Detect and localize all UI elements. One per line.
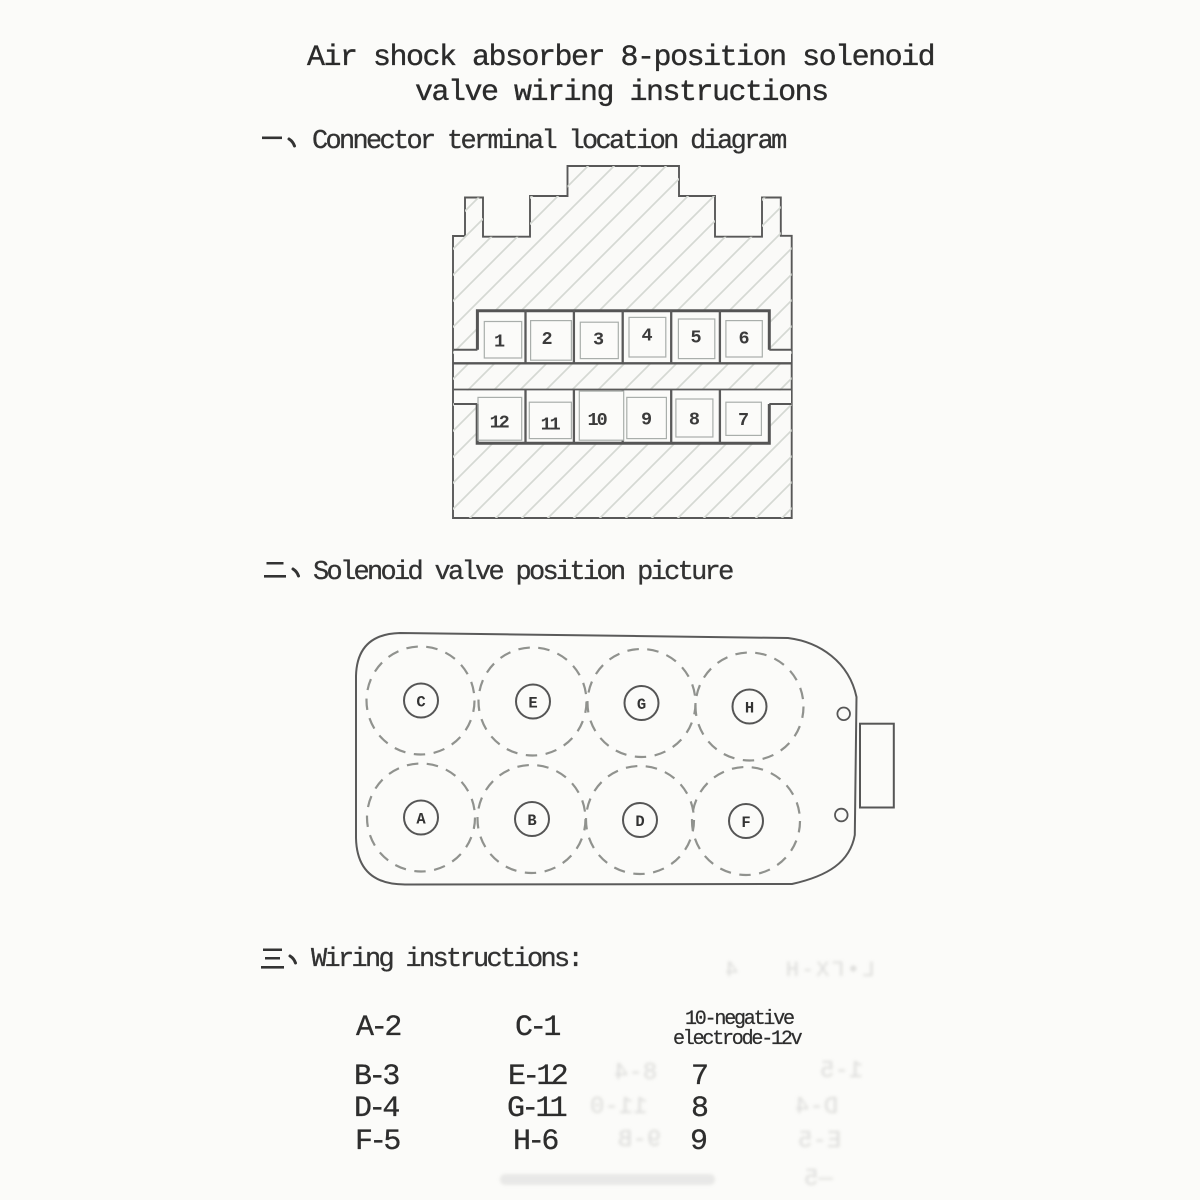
svg-text:H: H — [745, 700, 754, 718]
svg-text:6: 6 — [738, 329, 749, 350]
svg-text:G: G — [637, 696, 646, 714]
svg-text:B: B — [527, 812, 536, 830]
svg-text:10: 10 — [587, 410, 607, 431]
svg-text:3: 3 — [593, 330, 604, 351]
svg-text:9: 9 — [641, 410, 652, 431]
svg-text:8: 8 — [689, 410, 700, 431]
svg-text:E: E — [528, 695, 537, 713]
svg-text:2: 2 — [541, 329, 552, 350]
svg-text:12: 12 — [490, 413, 510, 434]
svg-text:1: 1 — [494, 332, 505, 353]
svg-text:C: C — [416, 694, 425, 712]
svg-text:7: 7 — [738, 410, 749, 431]
svg-text:D: D — [635, 813, 644, 831]
svg-text:A: A — [416, 811, 426, 829]
svg-text:5: 5 — [690, 328, 701, 349]
svg-text:4: 4 — [641, 326, 652, 347]
svg-text:F: F — [741, 814, 750, 832]
svg-text:11: 11 — [541, 415, 561, 436]
